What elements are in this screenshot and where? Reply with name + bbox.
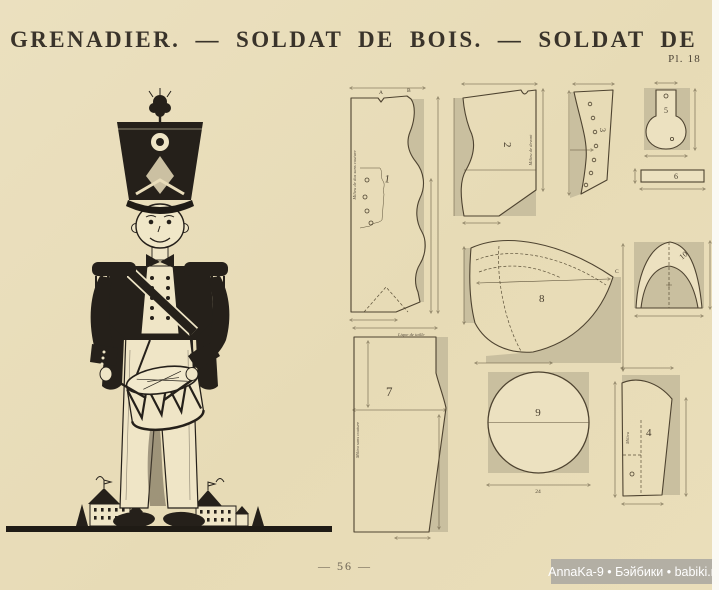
piece-2-label: Milieu de devant bbox=[528, 134, 533, 167]
piece-8-marker-c: C bbox=[615, 269, 619, 275]
toy-houses-right bbox=[194, 479, 264, 527]
piece-6-number: 6 bbox=[674, 172, 678, 181]
piece-4-number: 4 bbox=[646, 427, 652, 439]
plate-label: Pl. 18 bbox=[668, 53, 701, 65]
pattern-piece-2: 2 Milieu de devant bbox=[454, 84, 543, 223]
scan-edge-strip bbox=[712, 0, 719, 590]
pattern-piece-5: 5 bbox=[644, 83, 695, 156]
shako-hat bbox=[117, 122, 203, 200]
pattern-piece-4: 4 Milieu bbox=[615, 368, 686, 504]
scanned-book-page: GRENADIER. — SOLDAT DE BOIS. — SOLDAT DE… bbox=[0, 0, 719, 590]
piece-1-marker-a: A bbox=[379, 90, 383, 96]
piece-1-number: 1 bbox=[384, 173, 391, 186]
piece-5-number: 5 bbox=[664, 106, 668, 115]
piece-4-label: Milieu bbox=[625, 431, 630, 445]
pattern-pieces-panel: 1 Milieu de dos sans couture A B 2 Milie… bbox=[336, 80, 719, 550]
piece-9-number: 9 bbox=[535, 407, 541, 419]
page-number: — 56 — bbox=[318, 559, 372, 574]
watermark-badge: AnnaKa-9 • Бэйбики • babiki.ru bbox=[551, 559, 719, 584]
piece-8-number: 8 bbox=[539, 293, 545, 305]
pattern-piece-9: 9 24 bbox=[488, 372, 589, 495]
piece-2-number: 2 bbox=[501, 142, 513, 148]
pattern-piece-1: 1 Milieu de dos sans couture A B bbox=[351, 88, 438, 320]
toy-soldier-illustration bbox=[0, 80, 336, 550]
pattern-piece-7: 7 Ligne de taille Milieu sans couture bbox=[354, 328, 448, 538]
page-title: GRENADIER. — SOLDAT DE BOIS. — SOLDAT DE… bbox=[10, 27, 710, 53]
piece-1-label: Milieu de dos sans couture bbox=[352, 150, 357, 200]
pattern-piece-6: 6 bbox=[635, 170, 704, 189]
piece-7-number: 7 bbox=[386, 384, 393, 399]
shako-visor bbox=[126, 200, 194, 214]
piece-7-label: Milieu sans couture bbox=[355, 422, 360, 459]
pattern-piece-10: 10 bbox=[634, 242, 710, 316]
piece-7-waistline-label: Ligne de taille bbox=[397, 332, 425, 337]
pattern-piece-8: 8 C bbox=[464, 241, 623, 370]
soldier-neck-bow bbox=[146, 246, 174, 268]
ground-baseline bbox=[6, 526, 332, 532]
pattern-piece-3: 3 bbox=[569, 84, 613, 198]
piece-9-width-label: 24 bbox=[535, 489, 541, 495]
piece-3-number: 3 bbox=[598, 128, 607, 132]
shako-plume bbox=[149, 88, 171, 124]
watermark-text: AnnaKa-9 • Бэйбики • babiki.ru bbox=[548, 565, 719, 579]
piece-1-marker-b: B bbox=[407, 88, 411, 94]
